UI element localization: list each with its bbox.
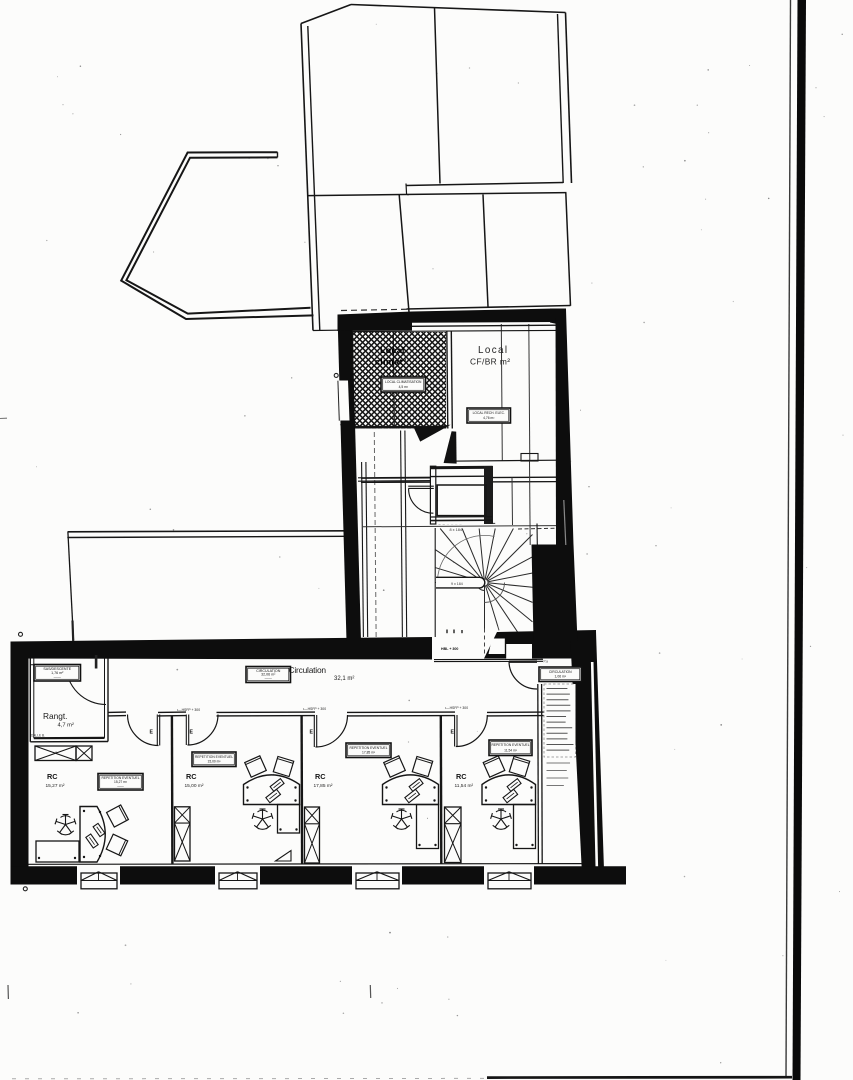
svg-text:CIRCULATION: CIRCULATION: [549, 670, 572, 674]
svg-text:P.a: P.a: [544, 660, 549, 664]
svg-text:REPETITION EVENTUEL: REPETITION EVENTUEL: [349, 746, 387, 750]
svg-text:CF/BR m²: CF/BR m²: [470, 357, 510, 367]
svg-text:Circulation: Circulation: [289, 665, 327, 675]
svg-text:——: ——: [54, 675, 62, 679]
svg-text:15,27 m²: 15,27 m²: [46, 783, 65, 789]
svg-text:9 x 184: 9 x 184: [451, 582, 463, 586]
svg-text:RC: RC: [456, 772, 467, 781]
svg-text:•—HSFP + 300: •—HSFP + 300: [445, 706, 468, 710]
svg-text:8 x 184: 8 x 184: [450, 528, 462, 532]
svg-text:E: E: [150, 730, 154, 736]
svg-text:LOCAL CLIMATISATION: LOCAL CLIMATISATION: [385, 380, 422, 384]
svg-text:17,85 m²: 17,85 m²: [314, 783, 333, 789]
svg-text:REPETITION EVENTUEL: REPETITION EVENTUEL: [195, 755, 233, 759]
svg-text:DALLE B.: DALLE B.: [31, 734, 45, 738]
svg-text:11,54 m²: 11,54 m²: [455, 783, 474, 789]
svg-text:15,00 m²: 15,00 m²: [207, 760, 221, 764]
svg-text:4,7 m²: 4,7 m²: [58, 723, 74, 729]
svg-text:Local: Local: [380, 345, 405, 355]
svg-text:15,00 m²: 15,00 m²: [185, 783, 204, 789]
svg-text:•—HSFP + 300: •—HSFP + 300: [303, 707, 326, 711]
svg-text:REPETITION EVENTUEL: REPETITION EVENTUEL: [491, 743, 529, 747]
svg-text:RC: RC: [186, 772, 197, 781]
svg-text:E: E: [310, 730, 314, 736]
svg-text:RC: RC: [315, 772, 326, 781]
svg-text:1,06 m²: 1,06 m²: [555, 675, 567, 679]
svg-text:LOCAL RECH. ELEC.: LOCAL RECH. ELEC.: [473, 411, 505, 415]
svg-text:17,85 m²: 17,85 m²: [362, 751, 376, 755]
svg-text:•—HSFP + 300: •—HSFP + 300: [177, 708, 200, 712]
svg-text:E: E: [190, 730, 194, 736]
svg-text:4,76 m²: 4,76 m²: [483, 416, 495, 420]
svg-text:11,54 m²: 11,54 m²: [504, 748, 518, 752]
svg-text:——: ——: [117, 784, 124, 788]
svg-text:32,1 m²: 32,1 m²: [334, 676, 354, 682]
svg-text:——: ——: [265, 676, 273, 680]
svg-text:HBL + 300: HBL + 300: [441, 647, 458, 651]
svg-text:Rangt.: Rangt.: [43, 711, 67, 721]
svg-text:climat°: climat°: [375, 357, 407, 367]
svg-text:RC: RC: [47, 772, 58, 781]
svg-text:4,5 m²: 4,5 m²: [399, 385, 409, 389]
svg-text:Local: Local: [478, 345, 508, 356]
svg-text:E: E: [451, 730, 455, 736]
